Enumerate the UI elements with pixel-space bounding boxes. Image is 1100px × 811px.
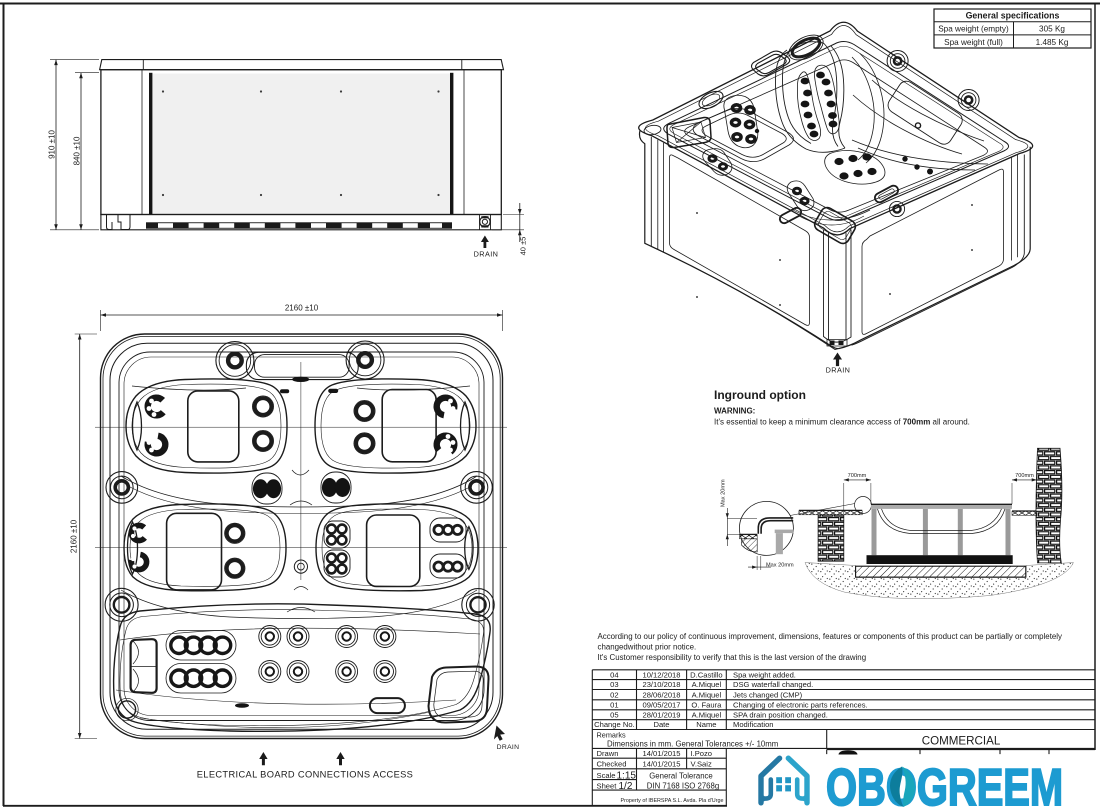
svg-text:Spa weight added.: Spa weight added. — [733, 670, 796, 679]
svg-text:1.485 Kg: 1.485 Kg — [1036, 38, 1069, 47]
svg-text:01: 01 — [610, 700, 618, 709]
svg-text:40 ±5: 40 ±5 — [519, 237, 528, 256]
svg-text:1:15: 1:15 — [617, 771, 637, 782]
svg-text:OBOGREEM: OBOGREEM — [826, 758, 1063, 811]
svg-text:V.Saiz: V.Saiz — [691, 760, 712, 769]
svg-text:Dimensions in mm. General Tole: Dimensions in mm. General Tolerances +/-… — [607, 739, 778, 748]
svg-text:10/12/2018: 10/12/2018 — [642, 670, 680, 679]
svg-text:A.Miquel: A.Miquel — [692, 710, 722, 719]
svg-text:A.Miquel: A.Miquel — [692, 680, 722, 689]
svg-text:14/01/2015: 14/01/2015 — [642, 749, 680, 758]
svg-text:Jets changed (CMP): Jets changed (CMP) — [733, 690, 803, 699]
svg-text:O. Faura: O. Faura — [691, 700, 722, 709]
svg-text:Change No.: Change No. — [594, 720, 635, 729]
svg-text:Scale: Scale — [597, 771, 616, 780]
svg-text:05: 05 — [610, 710, 618, 719]
svg-text:Inground option: Inground option — [714, 388, 806, 402]
svg-text:Modification: Modification — [733, 720, 774, 729]
svg-text:Max 20mm: Max 20mm — [721, 479, 727, 507]
svg-text:General Tolerance: General Tolerance — [649, 771, 713, 780]
svg-text:23/10/2018: 23/10/2018 — [642, 680, 680, 689]
svg-text:840 ±10: 840 ±10 — [72, 136, 81, 165]
svg-text:910 ±10: 910 ±10 — [47, 130, 56, 159]
svg-text:Sheet: Sheet — [597, 782, 618, 791]
svg-text:Checked: Checked — [597, 760, 627, 769]
svg-text:DIN 7168 ISO 2768g: DIN 7168 ISO 2768g — [647, 781, 719, 790]
svg-text:03: 03 — [610, 680, 618, 689]
svg-text:COMMERCIAL: COMMERCIAL — [922, 734, 1001, 747]
svg-text:Property of IBERSPA S.L. Avda.: Property of IBERSPA S.L. Avda. Pla d'Urg… — [620, 798, 723, 804]
svg-text:700mm: 700mm — [848, 473, 867, 479]
svg-text:WARNING:: WARNING: — [714, 407, 755, 416]
svg-text:700mm: 700mm — [1015, 473, 1034, 479]
svg-text:DSG waterfall changed.: DSG waterfall changed. — [733, 680, 813, 689]
svg-text:Changing of electronic parts r: Changing of electronic parts references. — [733, 700, 868, 709]
svg-text:I.Pozo: I.Pozo — [691, 749, 713, 758]
svg-text:2160 ±10: 2160 ±10 — [70, 519, 79, 553]
svg-text:14/01/2015: 14/01/2015 — [642, 760, 680, 769]
svg-text:Spa weight (empty): Spa weight (empty) — [938, 25, 1009, 34]
svg-text:28/01/2019: 28/01/2019 — [642, 710, 680, 719]
svg-text:1/2: 1/2 — [619, 781, 633, 792]
svg-text:Date: Date — [653, 720, 669, 729]
svg-text:General specifications: General specifications — [966, 11, 1060, 21]
svg-text:changedwithout prior notice.: changedwithout prior notice. — [598, 643, 697, 652]
svg-text:Max 20mm: Max 20mm — [766, 563, 794, 569]
svg-text:DRAIN: DRAIN — [826, 366, 851, 375]
svg-text:305 Kg: 305 Kg — [1039, 25, 1065, 34]
svg-text:It's essential to keep a minim: It's essential to keep a minimum clearan… — [714, 418, 970, 427]
svg-text:04: 04 — [610, 670, 618, 679]
svg-text:DRAIN: DRAIN — [497, 744, 520, 751]
svg-text:A.Miquel: A.Miquel — [692, 690, 722, 699]
svg-text:28/06/2018: 28/06/2018 — [642, 690, 680, 699]
svg-text:DRAIN: DRAIN — [474, 250, 499, 259]
svg-text:SPA drain position changed.: SPA drain position changed. — [733, 710, 828, 719]
svg-text:Remarks: Remarks — [597, 731, 627, 740]
svg-text:ELECTRICAL BOARD CONNECTIONS A: ELECTRICAL BOARD CONNECTIONS ACCESS — [197, 770, 413, 780]
svg-text:2160 ±10: 2160 ±10 — [285, 304, 319, 313]
svg-text:D.Castillo: D.Castillo — [690, 670, 723, 679]
svg-text:It's Customer responsibility t: It's Customer responsibility to verify t… — [598, 653, 867, 662]
svg-text:02: 02 — [610, 690, 618, 699]
svg-text:09/05/2017: 09/05/2017 — [642, 700, 680, 709]
svg-text:According to our policy of con: According to our policy of continuous im… — [598, 632, 1063, 641]
svg-text:Name: Name — [696, 720, 716, 729]
svg-text:Spa weight (full): Spa weight (full) — [944, 38, 1003, 47]
svg-text:Drawn: Drawn — [597, 749, 619, 758]
